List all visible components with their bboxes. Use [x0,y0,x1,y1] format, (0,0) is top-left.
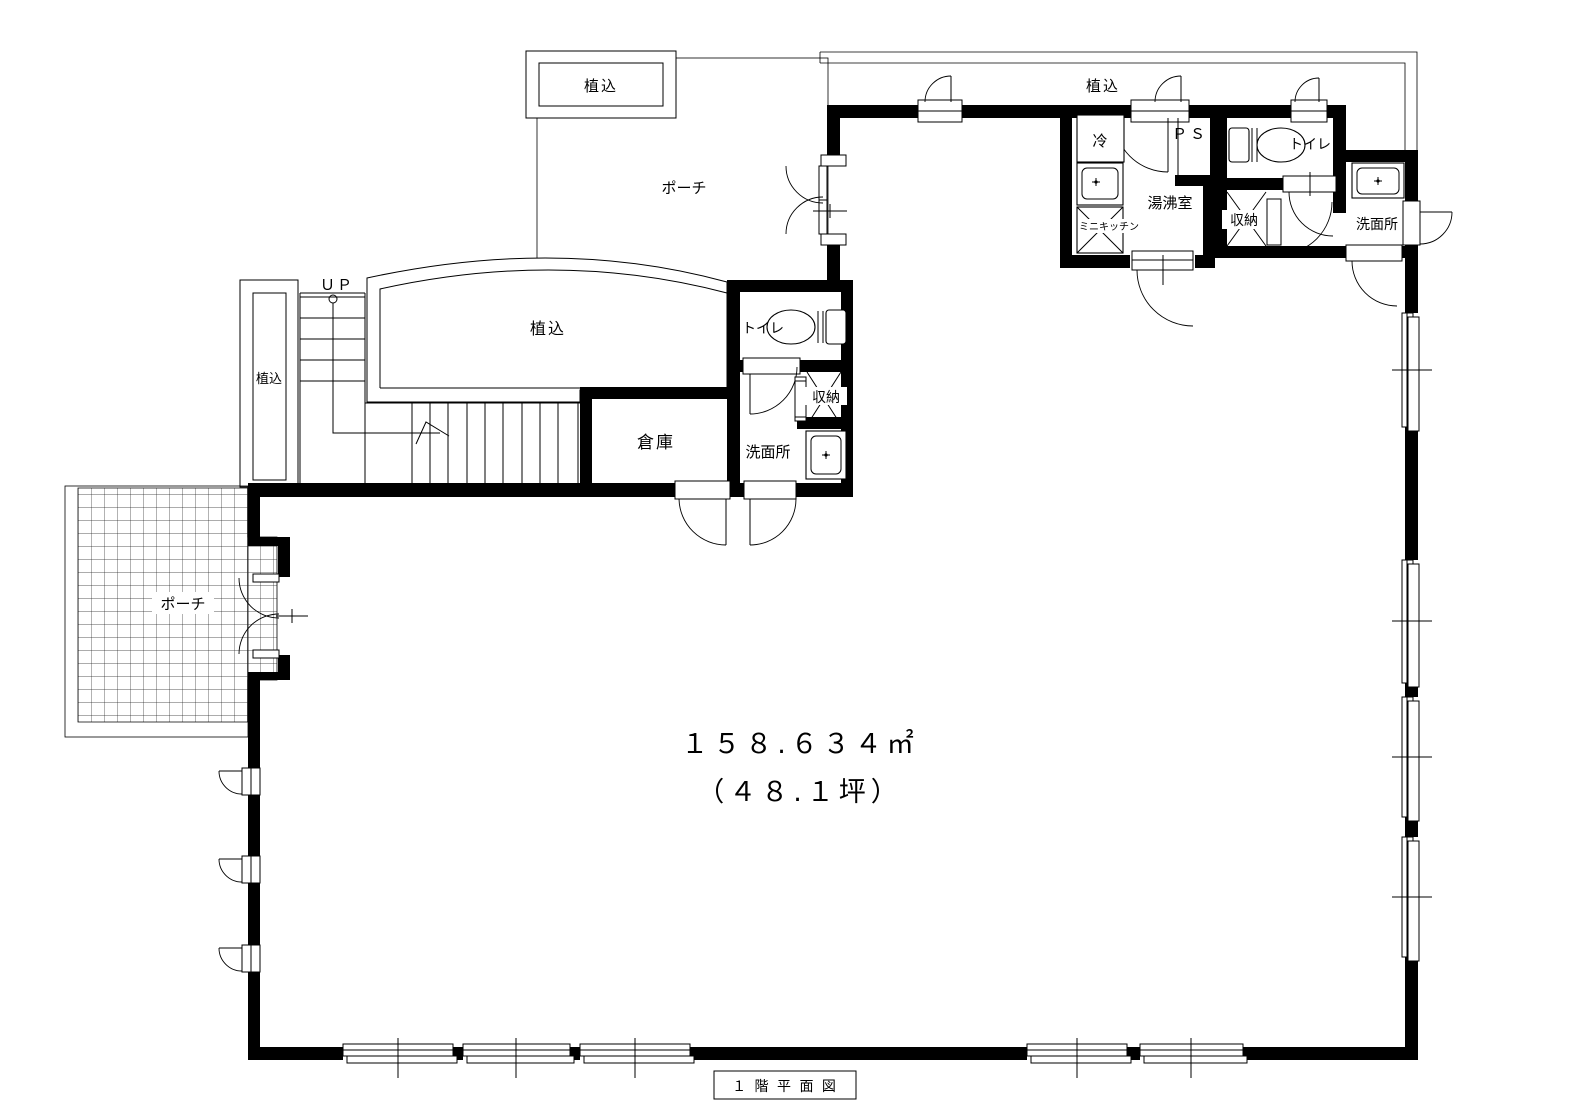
drain-icon [1376,179,1379,182]
door-swing-arc [1352,261,1397,306]
drain-icon [1094,180,1097,183]
left-planting-strip: 植込 [240,280,298,487]
up-label: ＵＰ [320,276,354,294]
door-sill [821,155,846,166]
window-pane-offset [1408,841,1419,961]
window-pane-offset [1144,1056,1247,1063]
drain-icon [824,453,827,456]
floor-plan-canvas: 植込 植込 ＵＰ 植込 植込 [0,0,1581,1118]
storage-top-right: 収納 [1222,192,1332,254]
window-pane-offset [1031,1056,1131,1063]
washroom-label: 洗面所 [745,443,790,461]
area-tsubo: （４８.１坪） [697,777,903,808]
toilet-tank [1229,128,1249,162]
door-swing-arcs [786,166,823,234]
area-annotation: １５８.６３４㎡ （４８.１坪） [681,729,919,808]
door-leaf [253,574,279,582]
page-title: １ 階 平 面 図 [732,1079,838,1095]
storage-label: 収納 [1230,213,1258,229]
warehouse-label: 倉庫 [637,433,675,453]
window-pane-offset [1408,564,1419,687]
door-tick [276,609,308,623]
stair-start-marker [329,295,337,303]
top-porch-entry-door [786,155,847,245]
door-tick [813,204,847,218]
area-m2: １５８.６３４㎡ [681,729,919,760]
porch-label-top: ポーチ [661,179,706,197]
walls [248,105,1418,1060]
porch-label-bottom: ポーチ [160,595,205,613]
pipe-space-label: ＰＳ [1172,125,1208,143]
storage-door-leaf [1267,199,1281,245]
door-sill [743,358,800,374]
hot-water-room-label: 湯沸室 [1147,194,1192,212]
window-pane-offset [347,1056,457,1063]
door-swing-arc [1137,270,1193,326]
toilet-label: トイレ [1289,137,1331,153]
window-swing-arc [1155,76,1181,102]
window-swing-arc [219,859,242,882]
door-swing-arc [1420,212,1452,244]
window-swing-arc [219,771,242,794]
fridge-label: 冷 [1092,132,1107,150]
right-wall-windows [1392,313,1432,961]
door-sill [675,481,730,499]
door-sill [1346,245,1402,261]
window-pane-offset [1408,701,1419,821]
storage-door-leaf [795,377,806,421]
window-swing-arc [219,948,242,971]
window-pane-offset [467,1056,574,1063]
washroom-label: 洗面所 [1356,217,1398,233]
door-leaf [253,650,279,658]
door-leaf [819,200,827,234]
washroom-center: 洗面所 [745,431,846,479]
window-swing-arc [925,76,951,102]
door-sill [821,234,846,245]
window-swing-arc [1295,78,1319,102]
title-box: １ 階 平 面 図 [714,1071,856,1099]
door-swing-arc [679,499,726,545]
door-sill [744,481,796,499]
storage-label: 収納 [812,390,840,406]
planting-label-strip: 植込 [256,372,282,387]
planting-label-center: 植込 [530,319,566,338]
planting-box-top-left: 植込 [526,51,676,118]
planting-label-top-right: 植込 [1086,77,1120,95]
window-pane-offset [584,1056,694,1063]
door-swing-arc2 [750,499,796,545]
toilet-label: トイレ [742,321,784,337]
mini-kitchen-label: ミニキッチン [1079,221,1139,233]
washroom-top-right: 洗面所 [1346,163,1452,306]
toilet-joint [818,311,823,343]
planting-label-top-left: 植込 [584,77,618,95]
stair-lower-flight [365,403,580,483]
door-sill [1403,201,1420,245]
hot-water-room-block: 冷 ミニキッチン 湯沸室 ＰＳ [1077,115,1208,326]
window-pane-offset [1408,317,1419,431]
door-swing-arc [1289,192,1333,236]
door-leaf [819,166,827,200]
toilet-joint [1252,128,1257,162]
toilet-tank [826,310,846,344]
